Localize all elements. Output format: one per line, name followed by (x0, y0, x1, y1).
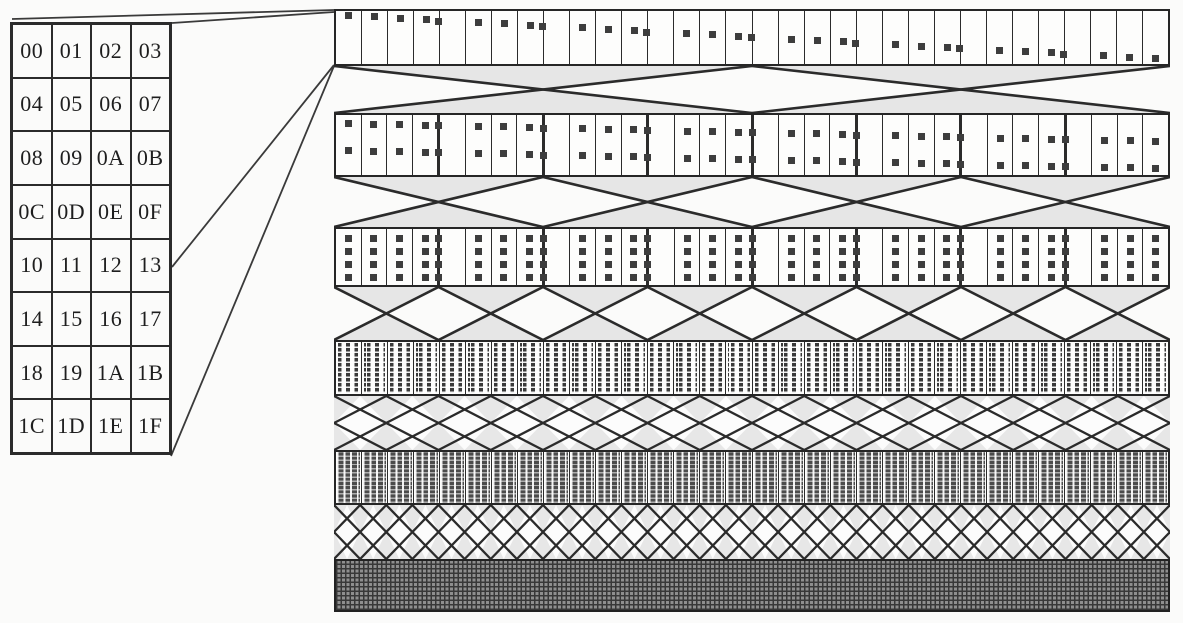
stage-2-cell (959, 115, 987, 175)
stage-4-cell (1116, 342, 1142, 394)
stage-2-cell (804, 115, 830, 175)
table-cell-10: 10 (12, 239, 52, 293)
stage-4-cell (908, 342, 934, 394)
stage-2-cell (699, 115, 725, 175)
table-cell-19: 19 (52, 346, 92, 400)
stage-3-cell (465, 229, 491, 285)
stage-3-cell (908, 229, 934, 285)
table-cell-06: 06 (91, 78, 131, 132)
stage-2-cell (908, 115, 934, 175)
stage-2-cell (674, 115, 700, 175)
table-cell-08: 08 (12, 131, 52, 185)
stage-3-cell (437, 229, 465, 285)
stage-1-cell (1012, 11, 1038, 64)
stage-2-cell (516, 115, 542, 175)
stage-4-cell (361, 342, 387, 394)
stage-2-cell (855, 115, 883, 175)
stage-5-cell (830, 452, 856, 503)
table-cell-11: 11 (52, 239, 92, 293)
stage-4-cell (1038, 342, 1064, 394)
stage-5-cell (1012, 452, 1038, 503)
stage-1-cell (439, 11, 465, 64)
stage-5-cell (960, 452, 986, 503)
stage-3-cell (1012, 229, 1038, 285)
crossing-band-4 (334, 396, 1170, 450)
table-cell-18: 18 (12, 346, 52, 400)
stage-3-cell (778, 229, 804, 285)
table-cell-15: 15 (52, 292, 92, 346)
stage-5-cell (543, 452, 569, 503)
stage-1-cell (752, 11, 778, 64)
table-cell-1E: 1E (91, 399, 131, 453)
stage-2-cell (882, 115, 908, 175)
table-cell-1D: 1D (52, 399, 92, 453)
stage-2-cell (1117, 115, 1143, 175)
stage-4-cell (1090, 342, 1116, 394)
stage-5-cell (778, 452, 804, 503)
stage-3-cell (1142, 229, 1168, 285)
crossing-band-3 (334, 287, 1170, 340)
stage-4-cell (465, 342, 491, 394)
stage-4-cell (699, 342, 725, 394)
stage-3-cell (1117, 229, 1143, 285)
butterfly-network-diagram: 000102030405060708090A0B0C0D0E0F10111213… (0, 0, 1183, 623)
stage-1-cell (1142, 11, 1168, 64)
table-cell-05: 05 (52, 78, 92, 132)
stage-5-cell (1142, 452, 1168, 503)
stage-5-cell (699, 452, 725, 503)
stage-3-cell (386, 229, 412, 285)
stage-1-cell (882, 11, 908, 64)
stage-3-cell (516, 229, 542, 285)
stage-1-cell (387, 11, 413, 64)
table-cell-07: 07 (131, 78, 171, 132)
stage-3-cell (412, 229, 438, 285)
stage-2-cell (1038, 115, 1064, 175)
table-cell-0A: 0A (91, 131, 131, 185)
table-cell-14: 14 (12, 292, 52, 346)
stage-4-cell (569, 342, 595, 394)
stage-5-cell (1064, 452, 1090, 503)
stage-4-cell (830, 342, 856, 394)
stage-5-cell (595, 452, 621, 503)
stage-1-cell (1116, 11, 1142, 64)
stage-2-cell (751, 115, 779, 175)
stage-4-cell (882, 342, 908, 394)
stage-1-cell (830, 11, 856, 64)
stage-5-cell (336, 452, 361, 503)
stage-4-cell (647, 342, 673, 394)
table-cell-12: 12 (91, 239, 131, 293)
crossing-band-5 (334, 505, 1170, 559)
stage-4-cell (621, 342, 647, 394)
stage-3-cell (491, 229, 517, 285)
stage-4-cell (804, 342, 830, 394)
stage-3-cell (569, 229, 595, 285)
stage-1-cell (778, 11, 804, 64)
stage-1-cell (1064, 11, 1090, 64)
stage-4-cell (387, 342, 413, 394)
stage-2-cell (465, 115, 491, 175)
stage-2-cell (987, 115, 1013, 175)
stage-3-cell (336, 229, 361, 285)
stage-1-cell (491, 11, 517, 64)
stage-3-cell (829, 229, 855, 285)
table-cell-0D: 0D (52, 185, 92, 239)
table-cell-1F: 1F (131, 399, 171, 453)
stage-3-cell (621, 229, 647, 285)
stage-5-cell (725, 452, 751, 503)
stage-3-cell (882, 229, 908, 285)
stage-3-cell (595, 229, 621, 285)
stage-3-strip (334, 227, 1170, 287)
stage-2-cell (542, 115, 570, 175)
stage-2-cell (621, 115, 647, 175)
stage-5-cell (387, 452, 413, 503)
stage-1-cell (647, 11, 673, 64)
stage-3-cell (1038, 229, 1064, 285)
stage-6-solid-grid (334, 559, 1170, 612)
table-cell-0C: 0C (12, 185, 52, 239)
stage-1-cell (673, 11, 699, 64)
stage-4-cell (1064, 342, 1090, 394)
stage-1-cell (804, 11, 830, 64)
table-cell-16: 16 (91, 292, 131, 346)
stage-4-cell (960, 342, 986, 394)
table-cell-0E: 0E (91, 185, 131, 239)
stage-1-cell (934, 11, 960, 64)
stage-2-cell (595, 115, 621, 175)
table-cell-02: 02 (91, 24, 131, 78)
stage-4-cell (673, 342, 699, 394)
stage-4-cell (1012, 342, 1038, 394)
table-cell-03: 03 (131, 24, 171, 78)
stage-4-cell (439, 342, 465, 394)
stage-3-cell (725, 229, 751, 285)
stage-1-cell (856, 11, 882, 64)
memory-address-table: 000102030405060708090A0B0C0D0E0F10111213… (10, 22, 172, 455)
stage-5-cell (517, 452, 543, 503)
stage-5-cell (986, 452, 1012, 503)
stage-3-cell (934, 229, 960, 285)
stage-5-cell (647, 452, 673, 503)
stage-4-cell (543, 342, 569, 394)
stage-4-cell (934, 342, 960, 394)
stage-2-cell (386, 115, 412, 175)
stage-1-cell (543, 11, 569, 64)
stage-3-cell (674, 229, 700, 285)
stage-2-strip (334, 113, 1170, 177)
stage-2-cell (1064, 115, 1092, 175)
stage-2-cell (1012, 115, 1038, 175)
stage-5-cell (439, 452, 465, 503)
table-cell-09: 09 (52, 131, 92, 185)
stage-3-cell (1064, 229, 1092, 285)
stage-2-cell (336, 115, 361, 175)
stage-3-cell (855, 229, 883, 285)
stage-3-cell (751, 229, 779, 285)
stage-4-cell (752, 342, 778, 394)
stage-3-cell (542, 229, 570, 285)
stage-2-cell (725, 115, 751, 175)
stage-3-cell (987, 229, 1013, 285)
stage-3-cell (1091, 229, 1117, 285)
stage-2-cell (569, 115, 595, 175)
stage-4-cell (413, 342, 439, 394)
table-cell-1C: 1C (12, 399, 52, 453)
stage-2-cell (934, 115, 960, 175)
stage-1-cell (1090, 11, 1116, 64)
stage-1-cell (336, 11, 361, 64)
stage-1-cell (908, 11, 934, 64)
stage-3-cell (804, 229, 830, 285)
stage-2-cell (829, 115, 855, 175)
table-cell-13: 13 (131, 239, 171, 293)
stage-1-cell (361, 11, 387, 64)
table-cell-0F: 0F (131, 185, 171, 239)
stage-5-cell (856, 452, 882, 503)
stage-1-cell (595, 11, 621, 64)
stage-4-cell (595, 342, 621, 394)
stage-5-cell (882, 452, 908, 503)
stage-4-cell (986, 342, 1012, 394)
stage-5-cell (491, 452, 517, 503)
stage-5-strip (334, 450, 1170, 505)
stage-5-cell (934, 452, 960, 503)
stage-5-cell (908, 452, 934, 503)
stage-4-cell (1142, 342, 1168, 394)
stage-5-cell (673, 452, 699, 503)
stage-4-cell (517, 342, 543, 394)
stage-5-cell (752, 452, 778, 503)
stage-5-cell (413, 452, 439, 503)
stage-4-cell (778, 342, 804, 394)
table-cell-17: 17 (131, 292, 171, 346)
table-cell-01: 01 (52, 24, 92, 78)
stage-1-cell (569, 11, 595, 64)
table-cell-0B: 0B (131, 131, 171, 185)
stage-2-cell (412, 115, 438, 175)
stage-5-cell (361, 452, 387, 503)
stage-5-cell (465, 452, 491, 503)
stage-4-strip (334, 340, 1170, 396)
stage-1-strip (334, 9, 1170, 66)
stage-1-cell (465, 11, 491, 64)
stage-1-cell (699, 11, 725, 64)
stage-5-cell (1116, 452, 1142, 503)
stage-2-cell (361, 115, 387, 175)
stage-1-cell (986, 11, 1012, 64)
table-cell-1B: 1B (131, 346, 171, 400)
stage-3-cell (361, 229, 387, 285)
stage-4-cell (491, 342, 517, 394)
stage-2-cell (1142, 115, 1168, 175)
stage-2-cell (437, 115, 465, 175)
crossing-band-1 (334, 66, 1170, 113)
stage-2-cell (646, 115, 674, 175)
stage-1-cell (960, 11, 986, 64)
stage-3-cell (699, 229, 725, 285)
stage-2-cell (778, 115, 804, 175)
table-cell-00: 00 (12, 24, 52, 78)
stage-5-cell (1090, 452, 1116, 503)
crossing-band-2 (334, 177, 1170, 227)
stage-2-cell (491, 115, 517, 175)
stage-3-cell (646, 229, 674, 285)
stage-5-cell (569, 452, 595, 503)
stage-2-cell (1091, 115, 1117, 175)
stage-5-cell (804, 452, 830, 503)
stage-3-cell (959, 229, 987, 285)
stage-1-cell (517, 11, 543, 64)
stage-5-cell (621, 452, 647, 503)
stage-1-cell (621, 11, 647, 64)
stage-4-cell (856, 342, 882, 394)
table-cell-1A: 1A (91, 346, 131, 400)
stage-4-cell (725, 342, 751, 394)
stage-4-cell (336, 342, 361, 394)
stage-5-cell (1038, 452, 1064, 503)
table-cell-04: 04 (12, 78, 52, 132)
